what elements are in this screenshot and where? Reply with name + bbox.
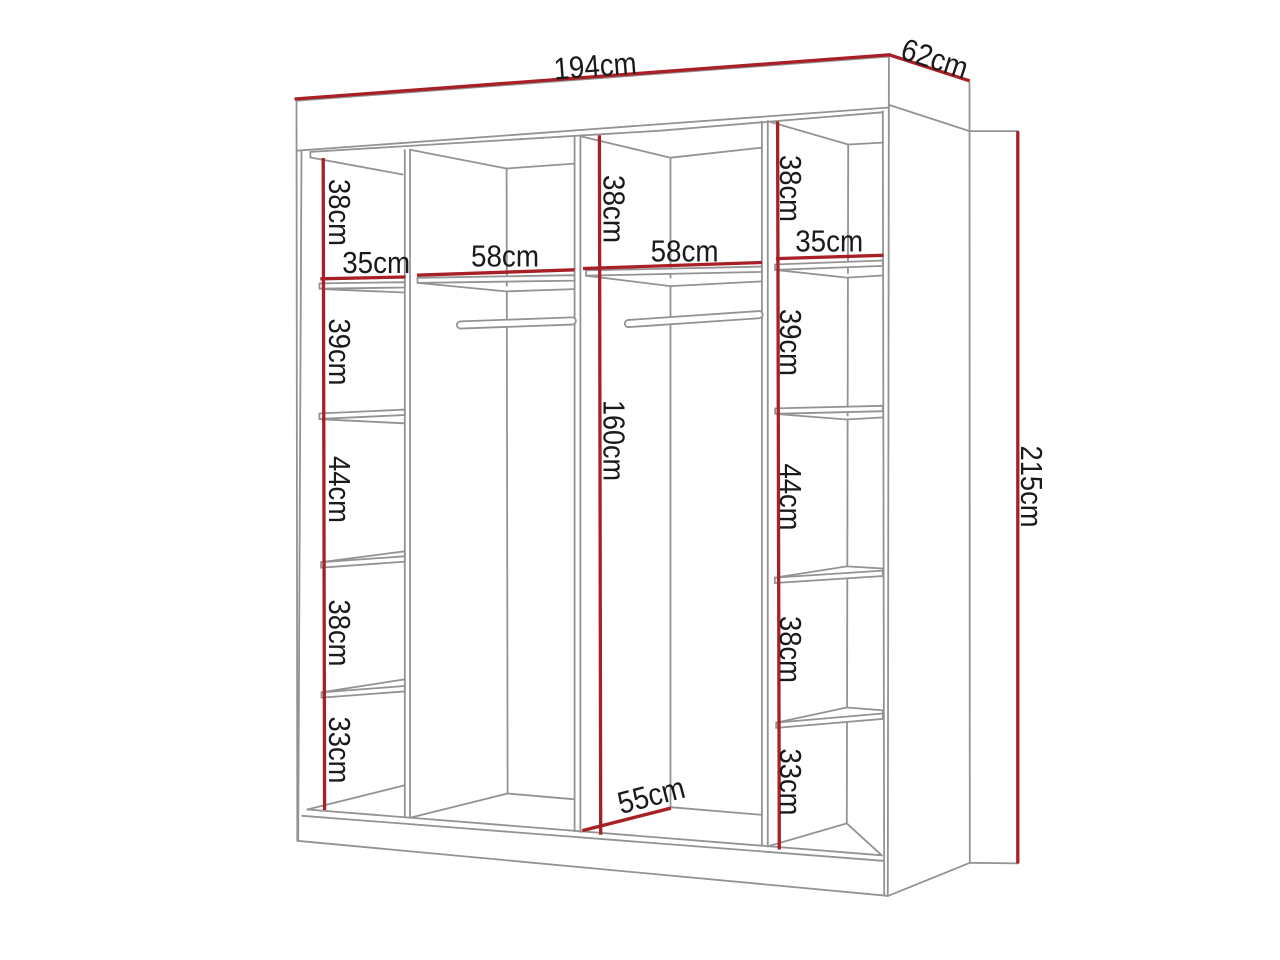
svg-text:38cm: 38cm bbox=[322, 600, 357, 667]
svg-text:58cm: 58cm bbox=[471, 238, 539, 273]
svg-text:35cm: 35cm bbox=[342, 245, 410, 280]
svg-text:35cm: 35cm bbox=[795, 224, 863, 259]
svg-text:58cm: 58cm bbox=[651, 234, 719, 269]
svg-text:55cm: 55cm bbox=[614, 770, 689, 821]
svg-text:39cm: 39cm bbox=[322, 319, 357, 386]
svg-text:194cm: 194cm bbox=[552, 45, 637, 86]
svg-text:38cm: 38cm bbox=[773, 616, 808, 683]
svg-text:62cm: 62cm bbox=[897, 32, 972, 86]
svg-text:160cm: 160cm bbox=[597, 400, 632, 481]
svg-text:33cm: 33cm bbox=[773, 749, 808, 816]
svg-text:38cm: 38cm bbox=[322, 179, 357, 246]
svg-text:38cm: 38cm bbox=[597, 175, 632, 243]
svg-text:44cm: 44cm bbox=[773, 464, 808, 531]
svg-text:215cm: 215cm bbox=[1014, 446, 1049, 528]
svg-text:33cm: 33cm bbox=[322, 717, 357, 784]
svg-text:39cm: 39cm bbox=[773, 309, 808, 376]
svg-text:38cm: 38cm bbox=[773, 155, 808, 222]
svg-text:44cm: 44cm bbox=[322, 456, 357, 523]
